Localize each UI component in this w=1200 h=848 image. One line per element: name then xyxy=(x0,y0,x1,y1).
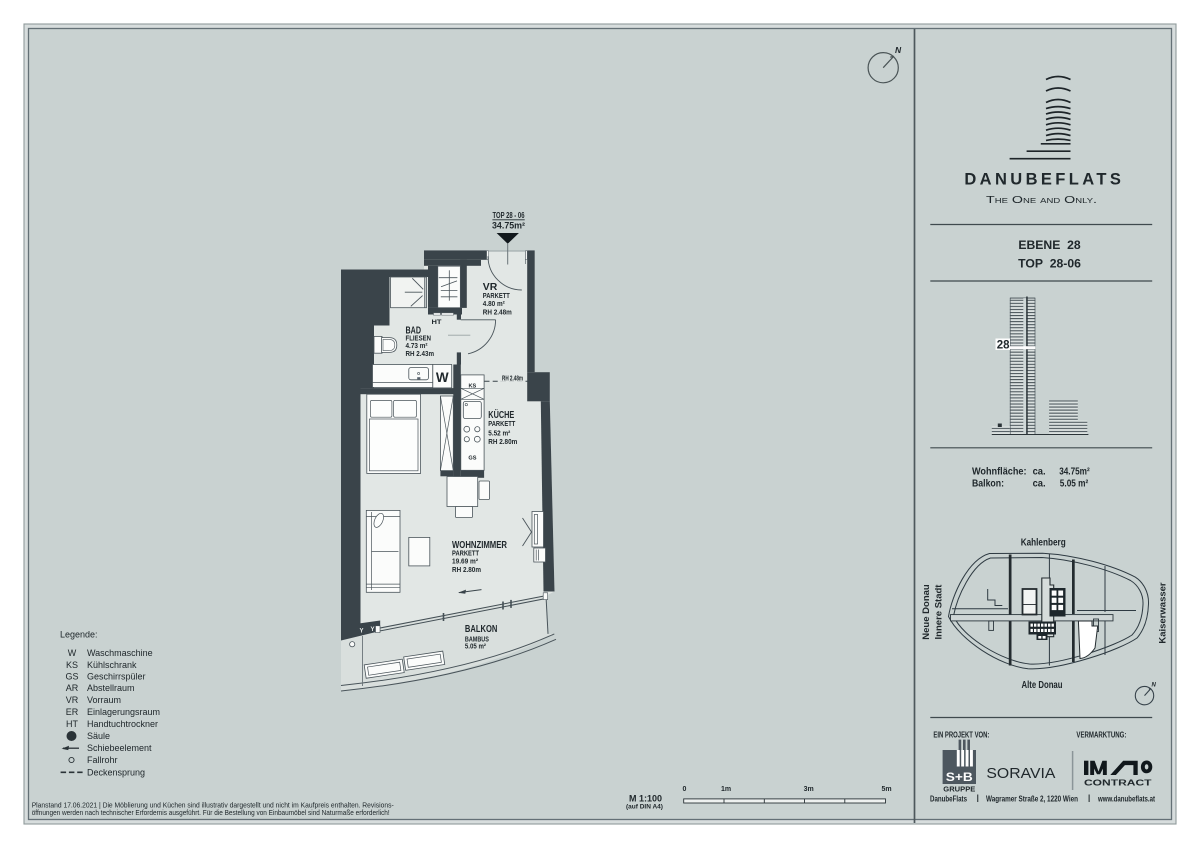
svg-text:5.52 m²: 5.52 m² xyxy=(488,430,511,437)
svg-text:|: | xyxy=(1088,794,1090,803)
svg-text:TOP 28-06: TOP 28-06 xyxy=(1018,257,1081,271)
svg-text:KS: KS xyxy=(66,660,78,670)
svg-text:28: 28 xyxy=(997,340,1010,352)
svg-text:GRUPPE: GRUPPE xyxy=(943,787,975,794)
svg-text:|: | xyxy=(977,794,979,803)
svg-text:The One and Only.: The One and Only. xyxy=(986,194,1097,206)
svg-text:BAMBUS: BAMBUS xyxy=(465,636,489,643)
svg-text:KS: KS xyxy=(469,383,477,389)
svg-text:Handtuchtrockner: Handtuchtrockner xyxy=(87,719,158,729)
svg-text:34.75m²: 34.75m² xyxy=(492,221,525,231)
svg-text:1m: 1m xyxy=(721,786,731,793)
svg-text:VR: VR xyxy=(66,695,79,705)
svg-text:WOHNZIMMER: WOHNZIMMER xyxy=(452,539,507,551)
svg-text:PARKETT: PARKETT xyxy=(452,551,480,558)
svg-text:DANUBEFLATS: DANUBEFLATS xyxy=(964,171,1124,189)
svg-text:M 1:100: M 1:100 xyxy=(629,793,662,803)
svg-text:CONTRACT: CONTRACT xyxy=(1084,778,1152,787)
svg-text:KÜCHE: KÜCHE xyxy=(488,408,514,421)
svg-text:AR: AR xyxy=(66,683,79,693)
svg-text:S+B: S+B xyxy=(946,770,973,784)
svg-text:RH 2.48m: RH 2.48m xyxy=(502,376,523,383)
svg-text:Wohnfläche:: Wohnfläche: xyxy=(972,466,1027,477)
svg-text:ca.: ca. xyxy=(1033,466,1046,477)
svg-text:Waschmaschine: Waschmaschine xyxy=(87,648,153,658)
svg-text:RH 2.48m: RH 2.48m xyxy=(483,310,512,317)
svg-text:Balkon:: Balkon: xyxy=(972,479,1004,490)
svg-text:Kahlenberg: Kahlenberg xyxy=(1021,538,1066,549)
svg-text:öffnungen werden nach technisc: öffnungen werden nach technischer Erford… xyxy=(32,808,390,817)
svg-text:DanubeFlats: DanubeFlats xyxy=(930,794,967,803)
svg-text:TOP 28 - 06: TOP 28 - 06 xyxy=(493,211,525,220)
svg-text:Kühlschrank: Kühlschrank xyxy=(87,660,137,670)
svg-text:Einlagerungsraum: Einlagerungsraum xyxy=(87,707,160,717)
svg-text:Alte Donau: Alte Donau xyxy=(1022,680,1063,691)
svg-text:Neue Donau: Neue Donau xyxy=(921,584,932,640)
svg-text:N: N xyxy=(895,45,902,55)
svg-text:BALKON: BALKON xyxy=(465,623,498,635)
svg-text:Innere Stadt: Innere Stadt xyxy=(934,584,945,640)
svg-text:Abstellraum: Abstellraum xyxy=(87,683,135,693)
svg-text:SORAVIA: SORAVIA xyxy=(986,766,1055,782)
svg-text:HT: HT xyxy=(66,719,78,729)
svg-text:Fallrohr: Fallrohr xyxy=(87,755,118,765)
svg-text:ER: ER xyxy=(66,707,79,717)
svg-text:34.75m²: 34.75m² xyxy=(1059,466,1090,477)
svg-text:(auf DIN A4): (auf DIN A4) xyxy=(626,804,663,811)
svg-text:RH 2.80m: RH 2.80m xyxy=(488,439,517,446)
svg-text:Säule: Säule xyxy=(87,731,110,741)
svg-text:GS: GS xyxy=(468,456,476,462)
svg-text:PARKETT: PARKETT xyxy=(488,421,516,428)
svg-text:3m: 3m xyxy=(804,786,814,793)
svg-text:5.05 m²: 5.05 m² xyxy=(465,644,487,651)
svg-text:GS: GS xyxy=(65,672,78,682)
svg-text:VR: VR xyxy=(483,281,498,293)
svg-text:PARKETT: PARKETT xyxy=(483,293,511,300)
svg-text:Y: Y xyxy=(359,629,363,635)
svg-text:www.danubeflats.at: www.danubeflats.at xyxy=(1097,794,1155,803)
svg-text:Deckensprung: Deckensprung xyxy=(87,768,145,778)
svg-text:FLIESEN: FLIESEN xyxy=(406,335,432,342)
svg-text:Schiebeelement: Schiebeelement xyxy=(87,743,152,753)
svg-text:5m: 5m xyxy=(881,786,891,793)
svg-text:W: W xyxy=(436,370,449,385)
svg-text:0: 0 xyxy=(683,786,687,793)
svg-text:EBENE 28: EBENE 28 xyxy=(1018,238,1081,252)
svg-text:4.73 m²: 4.73 m² xyxy=(406,343,429,350)
svg-text:VERMARKTUNG:: VERMARKTUNG: xyxy=(1076,731,1126,740)
svg-text:4.80 m²: 4.80 m² xyxy=(483,301,506,308)
svg-text:RH 2.43m: RH 2.43m xyxy=(406,351,435,358)
svg-text:ca.: ca. xyxy=(1033,479,1046,490)
svg-text:Vorraum: Vorraum xyxy=(87,695,121,705)
svg-text:Legende:: Legende: xyxy=(60,630,98,640)
svg-text:Geschirrspüler: Geschirrspüler xyxy=(87,672,146,682)
svg-text:5.05 m²: 5.05 m² xyxy=(1060,479,1089,490)
svg-text:RH 2.80m: RH 2.80m xyxy=(452,567,481,574)
svg-text:HT: HT xyxy=(432,319,443,326)
svg-text:W: W xyxy=(68,648,77,658)
svg-text:Wagramer Straße 2, 1220 Wien: Wagramer Straße 2, 1220 Wien xyxy=(986,794,1078,803)
svg-text:19.69 m²: 19.69 m² xyxy=(452,558,479,565)
svg-text:EIN PROJEKT VON:: EIN PROJEKT VON: xyxy=(933,731,989,740)
svg-text:N: N xyxy=(1152,683,1157,689)
svg-text:Kaiserwasser: Kaiserwasser xyxy=(1158,582,1169,644)
svg-text:Y: Y xyxy=(370,627,374,633)
